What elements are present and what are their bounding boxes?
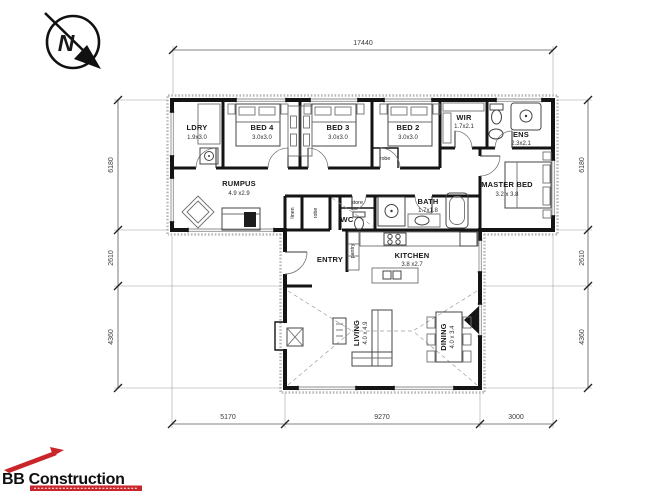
room-size-wir: 1.7x2.1 <box>454 124 474 130</box>
room-label-ens: ENS <box>513 130 529 139</box>
room-label-rumpus: RUMPUS <box>222 179 256 188</box>
dim-right-top: 6180 <box>579 157 586 173</box>
room-size-bed2: 3.0x3.0 <box>398 135 418 141</box>
builder-logo: BB Construction <box>2 447 142 491</box>
room-label-bath: BATH <box>417 197 438 206</box>
rumpus-furniture <box>182 196 260 230</box>
north-letter: N <box>58 30 75 56</box>
room-label-robe-bed2: robe <box>380 156 391 162</box>
room-label-master: MASTER BED <box>481 180 533 189</box>
dim-total-width: 17440 <box>353 40 373 47</box>
room-size-master: 3.2 x 3.8 <box>495 192 519 198</box>
room-size-living: 4.0 x 4.9 <box>363 321 369 345</box>
dim-bottom-mid: 9270 <box>374 414 390 421</box>
room-size-bed4: 3.0x3.0 <box>252 135 272 141</box>
logo-swoosh <box>4 452 57 473</box>
exterior-cladding <box>168 95 558 393</box>
wc-fixtures <box>353 212 365 230</box>
room-label-store: store <box>351 200 363 206</box>
dim-left-mid: 2610 <box>108 250 115 266</box>
logo-brand-text: BB Construction <box>2 471 125 488</box>
room-size-dining: 4.0 x 3.4 <box>450 325 456 349</box>
dim-bottom-left: 5170 <box>220 414 236 421</box>
dim-bottom-right: 3000 <box>508 414 524 421</box>
dim-left-bottom: 4360 <box>108 329 115 345</box>
room-label-robe-hall: robe <box>313 208 319 219</box>
room-size-rumpus: 4.9 x2.9 <box>228 191 250 197</box>
fireplace-nook <box>275 322 303 350</box>
dim-left-top: 6180 <box>108 157 115 173</box>
room-label-wir: WIR <box>456 113 472 122</box>
room-label-bed3: BED 3 <box>326 123 349 132</box>
room-label-wc: WC <box>341 215 354 224</box>
room-size-ldry: 1.9x3.0 <box>187 135 207 141</box>
room-label-living: LIVING <box>352 320 361 346</box>
dimension-top: 17440 <box>169 40 557 94</box>
room-size-bath: 1.7x1.8 <box>418 208 438 214</box>
dim-right-mid: 2610 <box>579 250 586 266</box>
windows <box>170 98 555 390</box>
dimension-right: 6180 2610 4360 <box>484 96 592 392</box>
room-label-pantry: pantry <box>350 243 356 258</box>
floor-plan-canvas: N <box>0 0 658 493</box>
slider-arrow-marker <box>464 306 479 334</box>
room-label-kitchen: KITCHEN <box>395 251 430 260</box>
room-size-ens: 2.3x2.1 <box>511 141 531 147</box>
room-size-bed3: 3.0x3.0 <box>328 135 348 141</box>
north-arrow-icon: N <box>45 13 101 69</box>
floor-plan-page: N <box>0 0 658 493</box>
room-size-kitchen: 3.8 x2.7 <box>401 262 423 268</box>
room-label-linen: linen <box>290 207 296 218</box>
room-label-dining: DINING <box>439 323 448 350</box>
room-label-bed4: BED 4 <box>250 123 274 132</box>
dim-right-bottom: 4360 <box>579 329 586 345</box>
room-label-bed2: BED 2 <box>396 123 419 132</box>
room-label-entry: ENTRY <box>317 255 343 264</box>
room-label-ldry: LDRY <box>187 123 208 132</box>
dining-furniture <box>427 312 471 362</box>
wir-shelves <box>443 103 484 143</box>
